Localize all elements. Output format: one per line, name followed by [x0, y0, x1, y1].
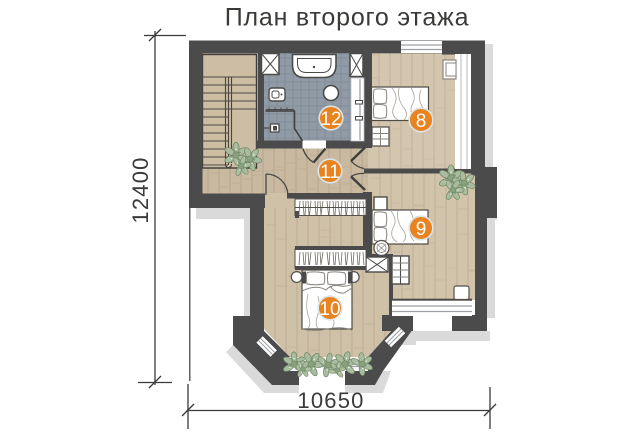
svg-text:12: 12 [320, 109, 341, 130]
svg-text:8: 8 [416, 111, 427, 132]
svg-text:9: 9 [416, 219, 427, 240]
svg-text:11: 11 [320, 162, 340, 183]
svg-text:10: 10 [319, 299, 340, 320]
svg-text:12400: 12400 [128, 156, 153, 223]
svg-text:План второго этажа: План второго этажа [225, 4, 470, 32]
